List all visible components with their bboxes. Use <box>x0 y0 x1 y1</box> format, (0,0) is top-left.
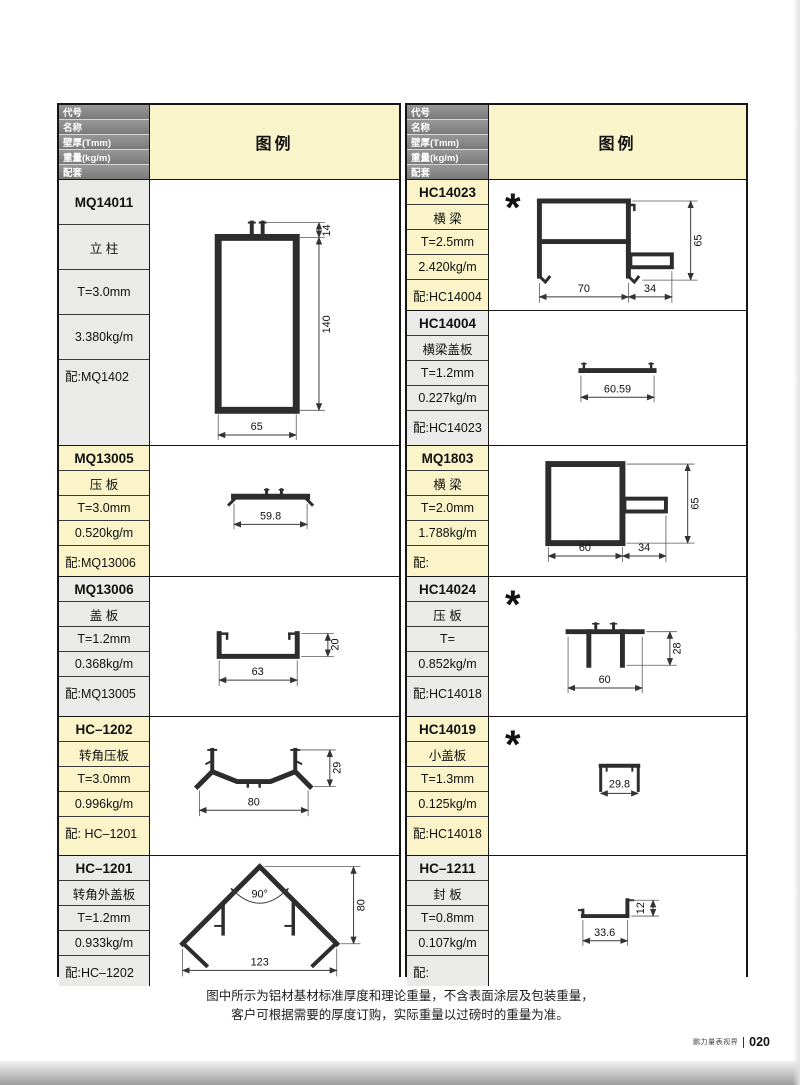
profile-block-mq14011: MQ14011 立 柱 T=3.0mm 3.380kg/m 配:MQ1402 1… <box>59 180 399 446</box>
profile-labels: HC–1202 转角压板 T=3.0mm 0.996kg/m 配: HC–120… <box>59 717 150 855</box>
diagram-hc1202: 80 29 <box>150 717 399 855</box>
profile-code: MQ1803 <box>407 446 488 471</box>
profile-name: 压 板 <box>59 471 149 496</box>
profile-weight: 0.368kg/m <box>59 652 149 677</box>
dim-label: 63 <box>252 666 264 678</box>
diagram-hc14004: 60.59 <box>489 311 746 445</box>
profile-drawing: 80 29 <box>150 717 399 855</box>
profile-name: 盖 板 <box>59 602 149 627</box>
profile-labels: HC–1201 转角外盖板 T=1.2mm 0.933kg/m 配:HC–120… <box>59 856 150 986</box>
profile-code: MQ13005 <box>59 446 149 471</box>
profile-labels: HC14004 横梁盖板 T=1.2mm 0.227kg/m 配:HC14023 <box>407 311 489 445</box>
header-name: 名称 <box>407 120 488 135</box>
profile-block-hc14024: HC14024 压 板 T= 0.852kg/m 配:HC14018 * 60 <box>407 577 746 717</box>
legend-header-cell: 图例 <box>489 105 746 179</box>
diagram-hc14023: * 65 70 34 <box>489 180 746 310</box>
dim-label: 90° <box>251 888 267 900</box>
dim-label: 123 <box>251 956 269 968</box>
diagram-mq14011: 14 140 65 <box>150 180 399 445</box>
profile-match: 配:HC–1202 <box>59 956 149 986</box>
dim-label: 60 <box>579 542 591 554</box>
profile-name: 横梁盖板 <box>407 336 488 361</box>
profile-thickness: T=1.2mm <box>59 627 149 652</box>
footer-note: 图中所示为铝材基材标准厚度和理论重量，不含表面涂层及包装重量， 客户可根据需要的… <box>0 987 800 1025</box>
profile-thickness: T=1.2mm <box>59 906 149 931</box>
profile-block-hc14004: HC14004 横梁盖板 T=1.2mm 0.227kg/m 配:HC14023… <box>407 311 746 446</box>
profile-weight: 0.107kg/m <box>407 931 488 956</box>
dim-label: 80 <box>248 796 260 808</box>
profile-match: 配:HC14004 <box>407 280 488 310</box>
diagram-hc14019: * 29.8 <box>489 717 746 855</box>
profile-labels: HC14024 压 板 T= 0.852kg/m 配:HC14018 <box>407 577 489 716</box>
profile-match: 配:HC14018 <box>407 677 488 716</box>
dim-label: 80 <box>355 899 367 911</box>
profile-labels: HC14019 小盖板 T=1.3mm 0.125kg/m 配:HC14018 <box>407 717 489 855</box>
profile-drawing: 65 70 34 <box>489 180 746 310</box>
diagram-mq1803: 60 34 65 <box>489 446 746 576</box>
dim-label: 34 <box>638 542 650 554</box>
profile-block-mq13005: MQ13005 压 板 T=3.0mm 0.520kg/m 配:MQ13006 … <box>59 446 399 577</box>
header-weight: 重量(kg/m) <box>407 150 488 165</box>
footer-divider <box>743 1037 744 1048</box>
dim-label: 14 <box>321 224 333 236</box>
header-row-labels: 代号 名称 壁厚(Tmm) 重量(kg/m) 配套 <box>59 105 150 179</box>
header-match: 配套 <box>407 165 488 179</box>
header-weight: 重量(kg/m) <box>59 150 149 165</box>
profile-weight: 3.380kg/m <box>59 315 149 360</box>
header-thickness: 壁厚(Tmm) <box>407 135 488 150</box>
profile-labels: MQ1803 横 梁 T=2.0mm 1.788kg/m 配: <box>407 446 489 576</box>
dim-label: 59.8 <box>260 510 281 522</box>
profile-name: 转角外盖板 <box>59 881 149 906</box>
profile-drawing: 20 63 <box>150 577 399 716</box>
legend-header-cell: 图例 <box>150 105 399 179</box>
profile-drawing: 29.8 <box>489 717 746 855</box>
profile-weight: 0.933kg/m <box>59 931 149 956</box>
profile-match: 配:HC14018 <box>407 817 488 855</box>
profile-thickness: T=2.5mm <box>407 230 488 255</box>
profile-thickness: T=0.8mm <box>407 906 488 931</box>
profile-name: 小盖板 <box>407 742 488 767</box>
dim-label: 60.59 <box>604 383 631 395</box>
profile-match: 配: <box>407 546 488 576</box>
profile-code: MQ13006 <box>59 577 149 602</box>
dim-label: 65 <box>690 498 702 510</box>
profile-code: HC14019 <box>407 717 488 742</box>
dim-label: 65 <box>251 421 263 433</box>
profile-match: 配:HC14023 <box>407 411 488 445</box>
profile-weight: 0.125kg/m <box>407 792 488 817</box>
profile-block-mq13006: MQ13006 盖 板 T=1.2mm 0.368kg/m 配:MQ13005 … <box>59 577 399 717</box>
dim-label: 70 <box>578 283 590 295</box>
header-thickness: 壁厚(Tmm) <box>59 135 149 150</box>
profile-code: HC–1211 <box>407 856 488 881</box>
diagram-mq13005: 59.8 <box>150 446 399 576</box>
profile-drawing: 60 28 <box>489 577 746 716</box>
profile-block-hc1202: HC–1202 转角压板 T=3.0mm 0.996kg/m 配: HC–120… <box>59 717 399 856</box>
header-row-labels: 代号 名称 壁厚(Tmm) 重量(kg/m) 配套 <box>407 105 489 179</box>
profile-code: HC14004 <box>407 311 488 336</box>
diagram-hc1201: 90° 80 123 <box>150 856 399 986</box>
dim-label: 34 <box>644 283 656 295</box>
profile-name: 封 板 <box>407 881 488 906</box>
profile-block-hc14023: HC14023 横 梁 T=2.5mm 2.420kg/m 配:HC14004 … <box>407 180 746 311</box>
profile-labels: MQ13005 压 板 T=3.0mm 0.520kg/m 配:MQ13006 <box>59 446 150 576</box>
profile-thickness: T=1.3mm <box>407 767 488 792</box>
brand-text: 鹏力量表视界 <box>693 1037 738 1047</box>
profile-weight: 0.227kg/m <box>407 386 488 411</box>
profile-labels: MQ13006 盖 板 T=1.2mm 0.368kg/m 配:MQ13005 <box>59 577 150 716</box>
dim-label: 65 <box>693 235 705 247</box>
profile-match: 配:MQ13005 <box>59 677 149 716</box>
profile-weight: 1.788kg/m <box>407 521 488 546</box>
diagram-mq13006: 20 63 <box>150 577 399 716</box>
dim-label: 28 <box>672 642 684 654</box>
profile-weight: 0.852kg/m <box>407 652 488 677</box>
footer-note-line1: 图中所示为铝材基材标准厚度和理论重量，不含表面涂层及包装重量， <box>0 987 800 1006</box>
profile-match: 配:MQ1402 <box>59 360 149 445</box>
profile-name: 横 梁 <box>407 471 488 496</box>
footer-note-line2: 客户可根据需要的厚度订购，实际重量以过磅时的重量为准。 <box>0 1006 800 1025</box>
profile-labels: MQ14011 立 柱 T=3.0mm 3.380kg/m 配:MQ1402 <box>59 180 150 445</box>
profile-thickness: T= <box>407 627 488 652</box>
diagram-hc14024: * 60 28 <box>489 577 746 716</box>
profile-match: 配: <box>407 956 488 986</box>
profile-block-hc1211: HC–1211 封 板 T=0.8mm 0.107kg/m 配: 33.6 12 <box>407 856 746 986</box>
dim-label: 29.8 <box>609 778 630 790</box>
table-header: 代号 名称 壁厚(Tmm) 重量(kg/m) 配套 图例 <box>59 105 399 180</box>
profile-drawing: 60.59 <box>489 311 746 445</box>
profile-code: HC14023 <box>407 180 488 205</box>
dim-label: 140 <box>321 315 333 333</box>
profile-drawing: 60 34 65 <box>489 446 746 576</box>
profile-name: 转角压板 <box>59 742 149 767</box>
table-header: 代号 名称 壁厚(Tmm) 重量(kg/m) 配套 图例 <box>407 105 746 180</box>
profile-drawing: 59.8 <box>150 446 399 576</box>
profile-match: 配:MQ13006 <box>59 546 149 576</box>
profile-drawing: 14 140 65 <box>150 180 399 445</box>
dim-label: 29 <box>332 762 344 774</box>
page-footer: 鹏力量表视界 020 <box>620 1034 770 1050</box>
profile-name: 压 板 <box>407 602 488 627</box>
profile-block-hc14019: HC14019 小盖板 T=1.3mm 0.125kg/m 配:HC14018 … <box>407 717 746 856</box>
profile-weight: 2.420kg/m <box>407 255 488 280</box>
profile-code: HC–1202 <box>59 717 149 742</box>
header-name: 名称 <box>59 120 149 135</box>
scan-edge-bottom <box>0 1061 800 1085</box>
profile-name: 立 柱 <box>59 225 149 270</box>
profile-drawing: 90° 80 123 <box>150 856 399 986</box>
profile-code: HC–1201 <box>59 856 149 881</box>
profile-drawing: 33.6 12 <box>489 856 746 986</box>
profile-labels: HC–1211 封 板 T=0.8mm 0.107kg/m 配: <box>407 856 489 986</box>
profile-thickness: T=3.0mm <box>59 767 149 792</box>
header-code: 代号 <box>59 105 149 120</box>
profile-code: MQ14011 <box>59 180 149 225</box>
profile-weight: 0.996kg/m <box>59 792 149 817</box>
scan-edge-right <box>793 0 800 1085</box>
profile-thickness: T=3.0mm <box>59 270 149 315</box>
diagram-hc1211: 33.6 12 <box>489 856 746 986</box>
profile-thickness: T=3.0mm <box>59 496 149 521</box>
profile-block-hc1201: HC–1201 转角外盖板 T=1.2mm 0.933kg/m 配:HC–120… <box>59 856 399 986</box>
profile-block-mq1803: MQ1803 横 梁 T=2.0mm 1.788kg/m 配: 60 34 65 <box>407 446 746 577</box>
header-match: 配套 <box>59 165 149 179</box>
header-code: 代号 <box>407 105 488 120</box>
catalog-table-left: 代号 名称 壁厚(Tmm) 重量(kg/m) 配套 图例 MQ14011 立 柱… <box>57 103 401 977</box>
catalog-table-right: 代号 名称 壁厚(Tmm) 重量(kg/m) 配套 图例 HC14023 横 梁… <box>405 103 748 977</box>
dim-label: 12 <box>635 902 647 914</box>
profile-name: 横 梁 <box>407 205 488 230</box>
profile-thickness: T=2.0mm <box>407 496 488 521</box>
profile-thickness: T=1.2mm <box>407 361 488 386</box>
profile-weight: 0.520kg/m <box>59 521 149 546</box>
profile-labels: HC14023 横 梁 T=2.5mm 2.420kg/m 配:HC14004 <box>407 180 489 310</box>
profile-code: HC14024 <box>407 577 488 602</box>
page-number: 020 <box>749 1035 770 1049</box>
dim-label: 60 <box>599 674 611 686</box>
dim-label: 20 <box>330 638 342 650</box>
profile-match: 配: HC–1201 <box>59 817 149 855</box>
dim-label: 33.6 <box>594 927 615 939</box>
